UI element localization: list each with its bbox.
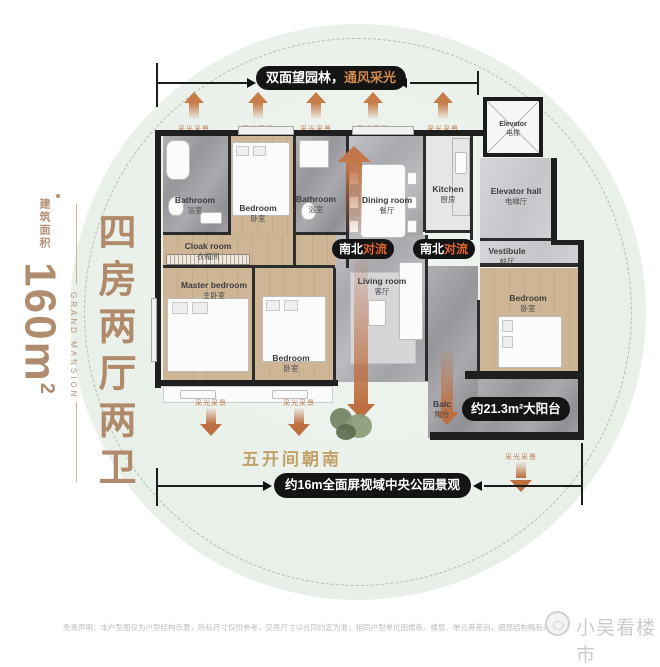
dim-line	[158, 82, 248, 84]
pillow-icon	[266, 300, 280, 311]
room-name-en: Elevator	[499, 121, 527, 130]
room-label-balcony: Balc阳台	[433, 399, 451, 419]
room-name-cn: 卧室	[239, 214, 276, 223]
banner-text-white: 双面望园林，	[266, 70, 344, 85]
bathtub-icon	[166, 140, 190, 180]
dim-tick	[156, 468, 158, 506]
room-name-en: Vestibule	[488, 246, 525, 257]
room-name-en: Bedroom	[509, 293, 546, 304]
daylight-down-arrow-icon	[200, 424, 222, 436]
wall	[465, 371, 584, 379]
airflow-up-arrow-icon	[184, 92, 204, 103]
room-name-cn: 厨房	[432, 195, 463, 204]
daylight-down-arrow-icon	[288, 424, 310, 436]
convection-text-white: 南北	[339, 242, 363, 256]
floorplan-poster: 建筑面积 160m2 GRAND MANSION 四房两厅两卫 双面望园林，通风…	[0, 0, 660, 660]
room-name-en: Living room	[358, 276, 407, 287]
room-name-cn: 电梯厅	[491, 197, 542, 206]
wall	[470, 136, 473, 240]
daylight-label: 采光采景	[195, 398, 227, 408]
window	[151, 298, 157, 362]
south-orientation-label: 五开间朝南	[242, 445, 342, 470]
wall	[578, 240, 584, 440]
airflow-up-arrow-icon	[248, 92, 268, 103]
dim-tick	[477, 71, 479, 95]
arrowhead-right-icon	[263, 481, 272, 491]
room-name-en: Dining room	[362, 195, 412, 206]
room-label-kitchen: Kitchen厨房	[432, 184, 463, 204]
brand-line-bottom	[76, 402, 77, 482]
room-name-en: Cloak room	[185, 241, 232, 252]
room-label-bedroom3: Bedroom卧室	[509, 293, 546, 313]
wall	[480, 238, 551, 241]
view-badge: 约16m全面屏视域中央公园景观	[274, 473, 471, 498]
room-label-bathroom2: Bathroom浴室	[296, 194, 336, 214]
banner-text-gold: 通风采光	[344, 70, 396, 85]
kitchen-counter-icon	[452, 138, 470, 216]
dim-tick	[581, 443, 583, 505]
room-label-bedroom-top: Bedroom卧室	[239, 203, 276, 223]
area-sup: 2	[36, 383, 58, 396]
room-name-en: Bathroom	[175, 195, 215, 206]
room-label-cloak: Cloak room衣帽间	[185, 241, 232, 261]
arrowhead-left-icon	[473, 481, 482, 491]
room-name-cn: 阳台	[433, 410, 451, 419]
stove-icon	[455, 152, 467, 174]
room-label-elevator-hall: Elevator hall电梯厅	[491, 186, 542, 206]
room-name-cn: 卧室	[509, 304, 546, 313]
brand-line-top	[76, 204, 77, 284]
wall	[423, 136, 426, 232]
daylight-label: 采光采景	[283, 398, 315, 408]
pillow-icon	[502, 320, 513, 332]
banner-pill: 双面望园林，通风采光	[256, 66, 406, 90]
shower-icon	[299, 140, 329, 168]
convection-text-accent: 对流	[444, 242, 468, 256]
room-name-en: Bathroom	[296, 194, 336, 205]
dim-line	[410, 82, 478, 84]
arrowhead-left-icon	[398, 78, 407, 88]
room-name-cn: 餐厅	[362, 206, 412, 215]
pillow-icon	[253, 146, 266, 156]
room-name-cn: 浴室	[296, 205, 336, 214]
dim-tick	[156, 63, 158, 107]
disclaimer-text: 免责声明：本户型图仅为户型结构示意，所标尺寸仅供参考，交房尺寸以合同约定为准；相…	[63, 622, 563, 633]
daylight-label: 采光采景	[505, 452, 537, 462]
airflow-up-arrow-icon	[306, 92, 326, 103]
wall	[477, 300, 480, 372]
wall	[163, 265, 335, 268]
room-label-dining: Dining room餐厅	[362, 195, 412, 215]
daylight-down-arrow-tail	[294, 408, 304, 424]
convection-pill: 南北对流	[413, 239, 475, 259]
dim-line	[484, 485, 582, 487]
dim-line	[158, 485, 264, 487]
area-number: 160m	[15, 262, 64, 383]
room-label-master: Master bedroom主卧室	[181, 280, 247, 300]
wall	[163, 232, 229, 235]
wall	[228, 136, 231, 235]
balcony-badge: 约21.3m²大阳台	[462, 397, 570, 421]
window	[238, 126, 294, 135]
window	[352, 126, 414, 135]
wall	[425, 230, 473, 233]
airflow-up-arrow-tail	[253, 103, 263, 119]
room-name-cn: 前厅	[488, 257, 525, 266]
watermark-logo-icon	[545, 611, 570, 636]
room-label-living: Living room客厅	[358, 276, 407, 296]
wall	[333, 268, 336, 382]
airflow-up-arrow-tail	[438, 103, 448, 119]
room-label-bathroom1: Bathroom浴室	[175, 195, 215, 215]
convection-pill: 南北对流	[332, 239, 394, 259]
airflow-up-arrow-tail	[368, 103, 378, 119]
room-label-elevator: Elevator电梯	[499, 121, 527, 139]
daylight-down-arrow-tail	[516, 462, 526, 478]
wall	[430, 432, 584, 440]
airflow-up-arrow-tail	[189, 103, 199, 119]
wall	[551, 158, 557, 244]
sofa-icon	[399, 262, 423, 340]
pillow-icon	[172, 302, 188, 314]
room-name-cn: 电梯	[499, 130, 527, 139]
room-label-vestibule: Vestibule前厅	[488, 246, 525, 266]
area-value: 160m2	[24, 229, 70, 429]
room-name-en: Bedroom	[239, 203, 276, 214]
pillow-icon	[192, 302, 208, 314]
room-name-cn: 卧室	[272, 364, 309, 373]
room-name-en: Bedroom	[272, 353, 309, 364]
pillow-icon	[502, 336, 513, 348]
wall	[155, 130, 485, 136]
convection-up-arrow-icon	[337, 146, 371, 162]
brand-text: GRAND MANSION	[69, 292, 78, 399]
room-label-bedroom2: Bedroom卧室	[272, 353, 309, 373]
room-name-en: Kitchen	[432, 184, 463, 195]
room-name-en: Master bedroom	[181, 280, 247, 291]
coffee-table-icon	[368, 300, 386, 326]
convection-text-white: 南北	[420, 242, 444, 256]
chair-icon	[407, 220, 417, 233]
plant-icon	[336, 424, 356, 440]
room-name-en: Balc	[433, 399, 451, 410]
convection-up-arrow-tail	[346, 162, 362, 232]
room-name-cn: 客厅	[358, 287, 407, 296]
convection-text-accent: 对流	[363, 242, 387, 256]
airflow-up-arrow-icon	[363, 92, 383, 103]
room-name-cn: 衣帽间	[185, 252, 232, 261]
arrowhead-right-icon	[247, 78, 256, 88]
airflow-up-arrow-tail	[311, 103, 321, 119]
room-name-cn: 浴室	[175, 206, 215, 215]
airflow-up-arrow-icon	[433, 92, 453, 103]
watermark-text: 小吴看楼市	[576, 613, 660, 667]
wall	[296, 232, 346, 235]
pillow-icon	[236, 146, 249, 156]
room-name-en: Elevator hall	[491, 186, 542, 197]
room-name-cn: 主卧室	[181, 291, 247, 300]
page-title: 四房两厅两卫	[86, 212, 141, 494]
pillow-icon	[284, 300, 298, 311]
wall	[252, 268, 255, 382]
daylight-down-arrow-tail	[206, 408, 216, 424]
chair-icon	[407, 172, 417, 185]
area-label-dot	[56, 194, 60, 198]
